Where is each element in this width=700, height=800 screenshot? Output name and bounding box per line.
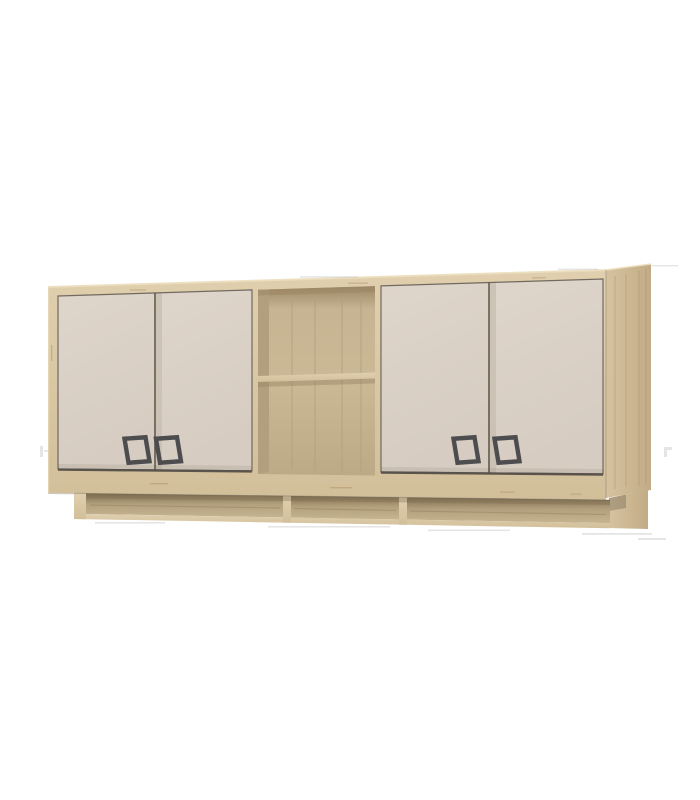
wall-cabinet-render (0, 0, 700, 800)
artifact-mark (638, 538, 666, 540)
rail-left-end (74, 493, 86, 519)
wood-grain-fleck (150, 483, 168, 484)
artifact-mark (664, 447, 667, 457)
artifact-mark (268, 526, 390, 528)
open-shelf-niche (258, 286, 375, 475)
artifact-mark (428, 530, 510, 532)
artifact-mark (558, 269, 598, 270)
wood-grain-fleck (500, 492, 515, 493)
wood-grain-fleck (51, 345, 52, 361)
wood-grain-fleck (570, 494, 582, 495)
door-right-inner (381, 283, 488, 473)
wood-grain-fleck (330, 487, 352, 488)
wood-grain-fleck (532, 277, 546, 278)
artifact-mark (582, 533, 652, 535)
artifact-mark (44, 450, 48, 452)
door-left-outer (58, 293, 154, 470)
side-panel (606, 264, 651, 498)
wood-grain-fleck (130, 289, 146, 290)
door-right-outer (490, 279, 603, 474)
artifact-mark (300, 276, 358, 278)
artifact-mark (652, 265, 678, 266)
artifact-mark (95, 522, 165, 524)
wood-grain-fleck (348, 283, 368, 284)
door-left-inner (156, 290, 252, 471)
artifact-mark (40, 446, 43, 457)
cabinet (40, 264, 678, 540)
product-image (0, 0, 700, 800)
